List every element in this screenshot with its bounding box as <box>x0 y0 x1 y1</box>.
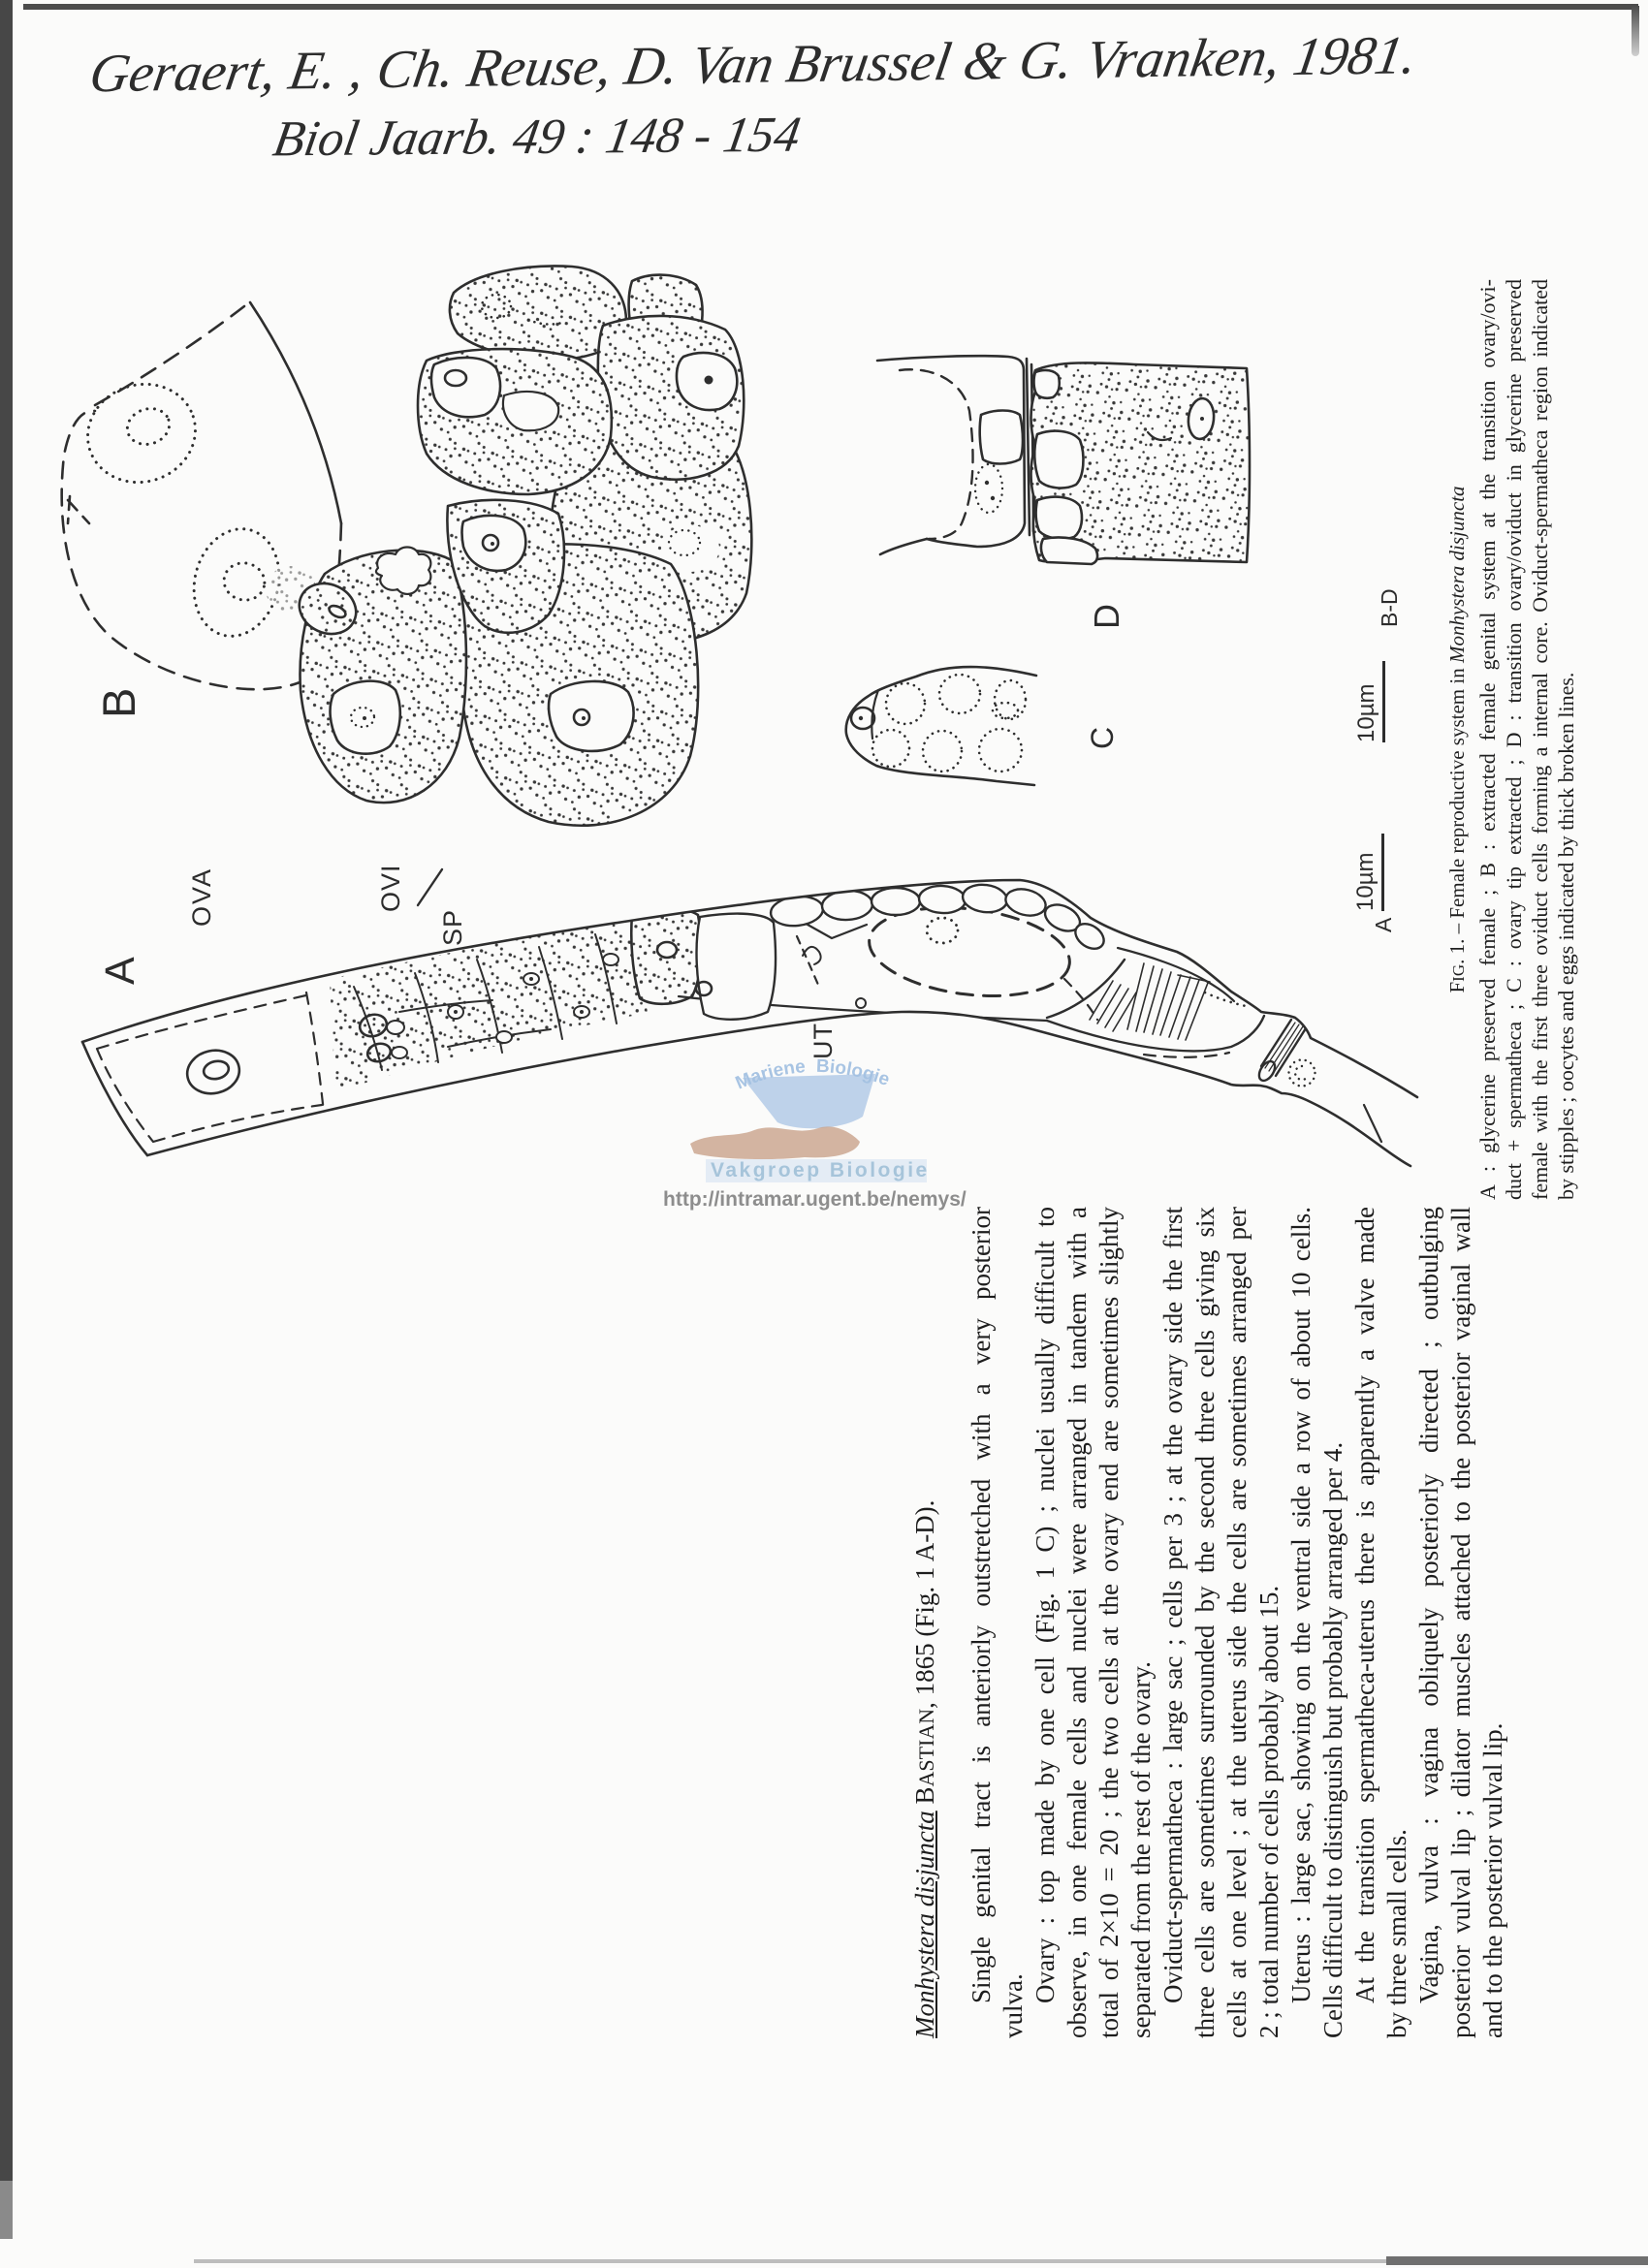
svg-text:http://intramar.ugent.be/nemys: http://intramar.ugent.be/nemys/ <box>663 1188 967 1211</box>
svg-text:Vakgroep Biologie: Vakgroep Biologie <box>711 1159 930 1181</box>
